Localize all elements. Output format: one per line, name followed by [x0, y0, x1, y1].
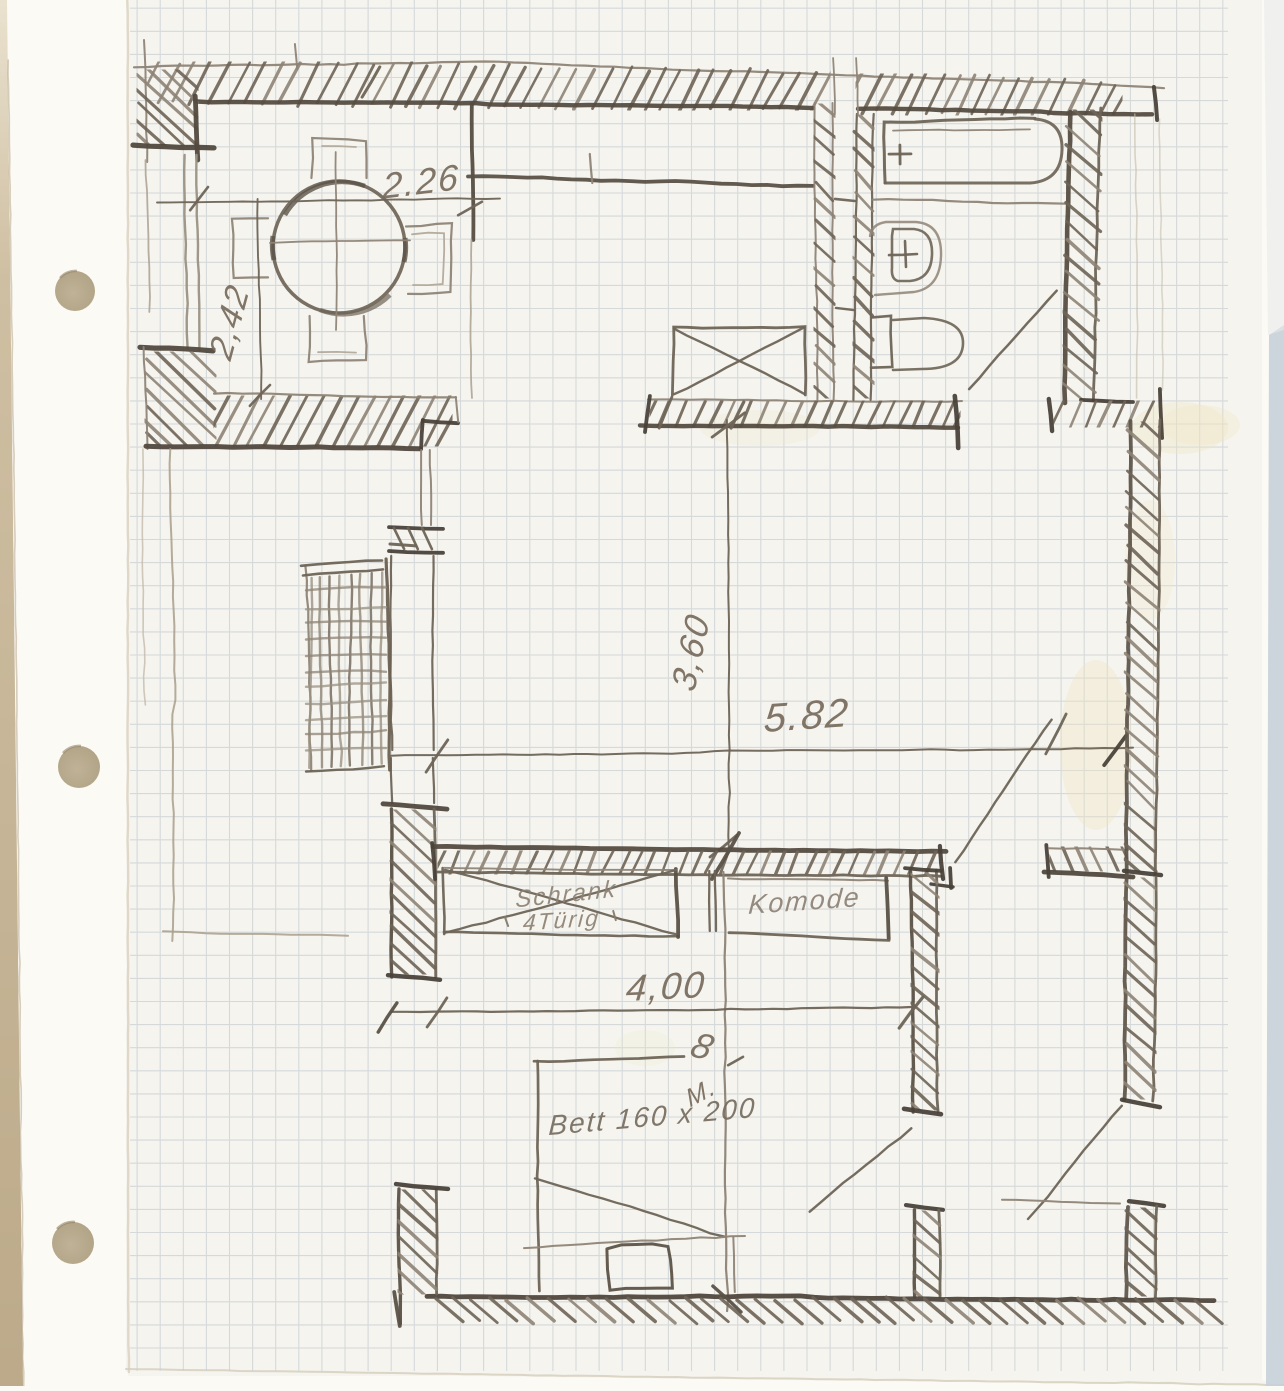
svg-text:5.82: 5.82 — [763, 690, 852, 741]
svg-text:4Türig: 4Türig — [522, 904, 601, 935]
svg-text:4,00: 4,00 — [624, 963, 708, 1009]
